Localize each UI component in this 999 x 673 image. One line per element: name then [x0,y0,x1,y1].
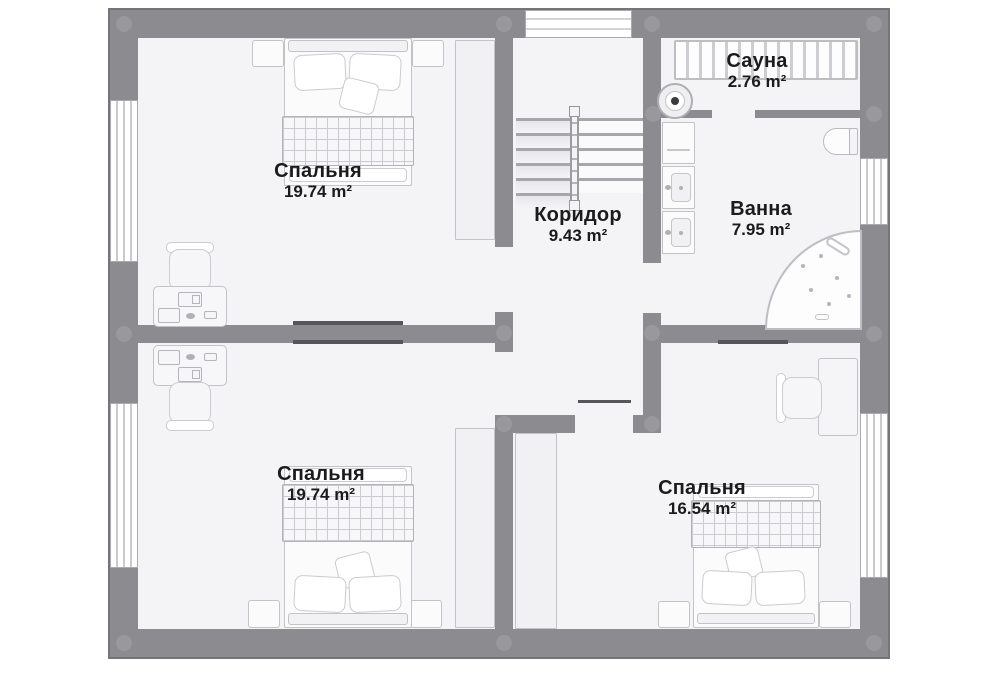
window-right-upper [860,158,888,225]
window-pane-line [880,414,882,577]
nightstand [248,600,280,628]
room-area: 2.76 m² [677,72,837,92]
sink-faucet [665,230,671,235]
sink-drain [679,186,683,190]
bed-headboard [288,613,408,625]
column-marker [866,326,882,342]
radiator-line [293,321,403,325]
wardrobe [455,40,495,240]
room-label-bedroom-bottom-right: Спальня 16.54 m² [622,477,782,519]
bathtub-jet [827,302,831,306]
bed-blanket [282,116,414,166]
monitor-icon [178,292,202,307]
office-chair [782,377,822,419]
wall-corridor-left-lower [495,415,513,629]
stair-tread [516,118,572,133]
nightstand [252,40,284,67]
monitor-screen [192,295,200,304]
window-pane-line [116,404,118,567]
stair-tread [578,163,643,178]
desk-accessory [204,311,217,319]
room-name: Коридор [498,204,658,226]
window-top-corridor [525,10,632,38]
sink-faucet [665,185,671,190]
pillow [348,575,402,614]
bathtub-jet [835,276,839,280]
monitor-icon [178,367,202,382]
room-area: 7.95 m² [681,220,841,240]
column-marker [644,16,660,32]
room-name: Спальня [238,160,398,182]
window-pane-line [866,414,868,577]
column-marker [116,16,132,32]
room-label-bedroom-bottom-left: Спальня 19.74 m² [241,463,401,505]
pillow [754,570,806,607]
bed-headboard [697,613,815,624]
toilet-tank [849,128,858,155]
nightstand [658,601,690,628]
column-marker [116,326,132,342]
sauna-heater-center [671,97,679,105]
stair-railing-post [569,106,580,117]
stair-tread [516,163,572,178]
room-area: 16.54 m² [622,499,782,519]
bathtub-jet [819,254,823,258]
pillow [701,570,753,607]
window-pane-line [526,18,631,20]
window-pane-line [123,404,125,567]
room-name: Ванна [681,198,841,220]
column-marker [644,325,660,341]
window-pane-line [130,404,132,567]
stair-tread [578,118,643,133]
pillow [293,575,347,614]
window-pane-line [130,101,132,261]
desk [153,286,227,327]
window-pane-line [866,159,868,224]
window-right-lower [860,413,888,578]
room-label-corridor: Коридор 9.43 m² [498,204,658,246]
wardrobe [515,433,557,629]
stair-tread [516,133,572,148]
door-threshold-line [578,400,631,403]
stair-tread [516,178,572,193]
bathtub-jet [847,294,851,298]
column-marker [866,106,882,122]
room-name: Сауна [677,50,837,72]
column-marker [496,325,512,341]
room-label-sauna: Сауна 2.76 m² [677,50,837,92]
room-name: Спальня [622,477,782,499]
bathtub-jet [801,264,805,268]
monitor-screen [192,370,200,379]
column-marker [496,16,512,32]
desk [153,345,227,386]
keyboard-icon [158,350,180,365]
radiator-line [718,340,788,344]
radiator-line [293,340,403,344]
window-left-lower [110,403,138,568]
desk [818,358,858,436]
pillow [293,53,347,92]
office-chair [169,382,211,424]
window-pane-line [880,159,882,224]
wall-sauna-divider-right [755,110,860,118]
stair-tread [516,148,572,163]
office-chair [169,249,211,291]
stair-tread [578,148,643,163]
room-label-bathroom: Ванна 7.95 m² [681,198,841,240]
nightstand [410,600,442,628]
column-marker [116,635,132,651]
stair-railing [570,112,579,208]
nightstand [412,40,444,67]
column-marker [644,416,660,432]
mouse-icon [186,354,195,360]
room-area: 19.74 m² [238,182,398,202]
desk-accessory [204,353,217,361]
window-pane-line [526,28,631,30]
window-pane-line [873,414,875,577]
mouse-icon [186,313,195,319]
nightstand [819,601,851,628]
keyboard-icon [158,308,180,323]
floor-plan: Спальня 19.74 m² Коридор 9.43 m² Сауна 2… [0,0,999,673]
bath-cabinet [662,122,695,164]
column-marker [866,16,882,32]
room-area: 19.74 m² [241,485,401,505]
bathtub-drain [815,314,829,320]
column-marker [866,635,882,651]
bed-headboard [288,40,408,52]
window-pane-line [116,101,118,261]
chair-backrest [166,420,214,431]
column-marker [496,635,512,651]
stair-tread [578,178,643,193]
stair-tread [578,133,643,148]
cabinet-shelf-line [667,149,690,151]
window-pane-line [123,101,125,261]
window-pane-line [873,159,875,224]
bathtub-jet [809,288,813,292]
room-area: 9.43 m² [498,226,658,246]
wardrobe [455,428,495,628]
room-label-bedroom-top-left: Спальня 19.74 m² [238,160,398,202]
room-name: Спальня [241,463,401,485]
window-left-upper [110,100,138,262]
column-marker [496,416,512,432]
